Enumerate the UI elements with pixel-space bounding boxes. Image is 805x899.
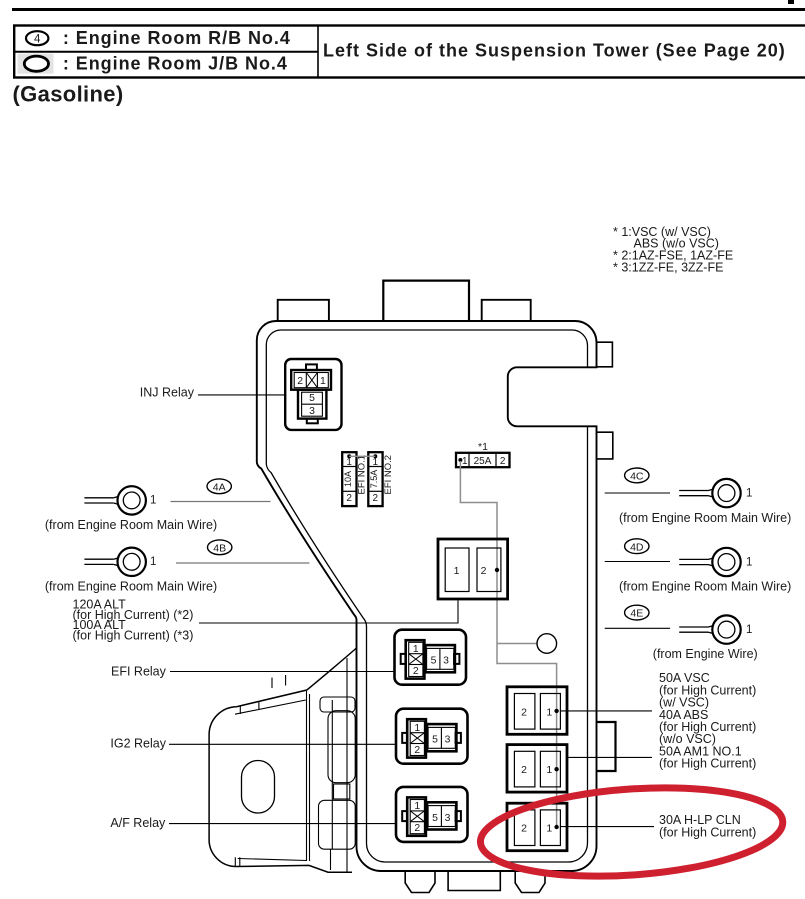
svg-text:: Engine Room R/B No.4: : Engine Room R/B No.4 (63, 28, 291, 48)
svg-text:Left Side of the Suspension To: Left Side of the Suspension Tower (See P… (323, 41, 786, 61)
svg-text:IG2 Relay: IG2 Relay (110, 737, 166, 751)
svg-text:(from Engine Wire): (from Engine Wire) (653, 647, 758, 661)
svg-text:3: 3 (309, 406, 315, 417)
svg-text:(from Engine Room Main Wire): (from Engine Room Main Wire) (619, 580, 791, 594)
svg-text:5: 5 (309, 393, 315, 404)
svg-text:(for High Current): (for High Current) (659, 757, 756, 771)
svg-text:EFI Relay: EFI Relay (111, 664, 167, 678)
svg-text:1: 1 (746, 556, 752, 568)
svg-text:1: 1 (373, 457, 379, 468)
svg-text:2: 2 (481, 565, 487, 577)
svg-text:(from Engine Room Main Wire): (from Engine Room Main Wire) (45, 580, 217, 594)
svg-text:1: 1 (462, 456, 468, 467)
svg-text:* 3:1ZZ-FE, 3ZZ-FE: * 3:1ZZ-FE, 3ZZ-FE (613, 261, 723, 275)
svg-text:2: 2 (297, 376, 303, 387)
svg-text:2: 2 (373, 493, 379, 504)
svg-text:EFI NO.1: EFI NO.1 (357, 455, 368, 495)
svg-text:1: 1 (746, 624, 752, 636)
svg-text:2: 2 (500, 456, 506, 467)
svg-text:1: 1 (346, 457, 352, 468)
svg-text:1: 1 (150, 495, 156, 507)
svg-text:4C: 4C (630, 471, 644, 483)
svg-text:: Engine Room J/B No.4: : Engine Room J/B No.4 (63, 54, 288, 74)
svg-text:(Gasoline): (Gasoline) (13, 82, 124, 107)
svg-text:10A: 10A (343, 471, 353, 487)
svg-text:(for High Current): (for High Current) (659, 825, 756, 839)
svg-text:1: 1 (746, 488, 752, 500)
svg-text:EFI NO.2: EFI NO.2 (383, 455, 394, 495)
svg-text:4E: 4E (630, 608, 643, 620)
svg-text:(from Engine Room Main Wire): (from Engine Room Main Wire) (45, 518, 217, 532)
svg-text:1: 1 (320, 376, 326, 387)
svg-text:(from Engine Room Main Wire): (from Engine Room Main Wire) (619, 511, 791, 525)
svg-text:4D: 4D (630, 541, 644, 553)
svg-text:7.5A: 7.5A (369, 470, 379, 489)
svg-text:4A: 4A (213, 481, 226, 493)
svg-text:4B: 4B (213, 542, 226, 554)
svg-text:25A: 25A (474, 456, 492, 467)
svg-text:2: 2 (346, 493, 352, 504)
svg-text:(for High Current) (*3): (for High Current) (*3) (73, 629, 194, 643)
svg-text:A/F Relay: A/F Relay (110, 816, 166, 830)
svg-text:1: 1 (150, 556, 156, 568)
svg-text:*1: *1 (478, 441, 488, 453)
svg-text:4: 4 (34, 33, 41, 45)
svg-text:INJ Relay: INJ Relay (140, 385, 195, 399)
svg-text:1: 1 (454, 565, 460, 577)
